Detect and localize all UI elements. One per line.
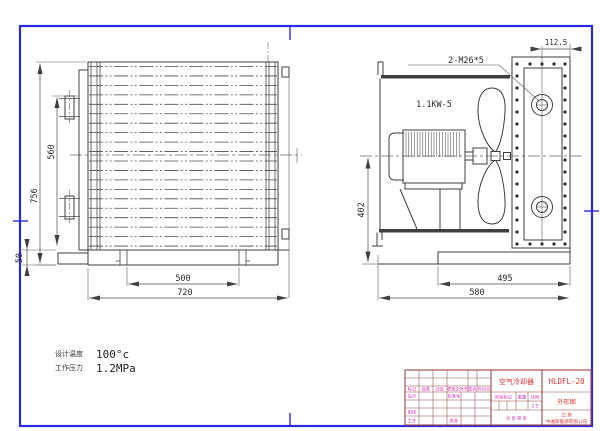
- dim-total-height: 756: [30, 188, 40, 203]
- tb-region: 江 苏: [561, 412, 572, 419]
- front-view: 756 560 50 500 720: [15, 42, 302, 300]
- dim-side-total-width: 580: [469, 288, 484, 298]
- tb-field-approve: 批准: [450, 417, 458, 424]
- title-block: 标记 处数 分区 更改文件号 签名 年月日 设计 标准化 审核 工艺 批准 阶段…: [405, 370, 591, 425]
- side-panel: [512, 46, 570, 248]
- tb-field-weight: 重量: [518, 394, 526, 401]
- tb-model: HLDFL-20: [548, 377, 585, 386]
- tb-field-stage-mark: 阶段标记: [495, 394, 513, 401]
- dim-fin-height: 560: [47, 144, 57, 159]
- dim-axis-height: 402: [357, 202, 367, 217]
- motor-fins: [406, 132, 459, 157]
- left-flange-lower: [59, 190, 80, 225]
- tb-company: 中通新能源有限公司: [546, 418, 588, 425]
- tb-sheets: 共 张 第 张: [506, 415, 528, 422]
- dim-port-offset: 112.5: [545, 38, 568, 47]
- fan-housing: [372, 62, 510, 246]
- port-label: 2-M26*5: [448, 56, 484, 66]
- front-dimensions: 756 560 50 500 720: [15, 62, 288, 300]
- design-temp-label: 设计温度: [55, 349, 83, 358]
- right-stub-lower: [282, 229, 289, 239]
- tb-field-date: 年月日: [478, 386, 491, 393]
- tb-field-review: 审核: [408, 409, 417, 416]
- side-labels: 2-M26*5 1.1KW-5: [408, 56, 539, 110]
- cad-drawing: 756 560 50 500 720: [0, 0, 600, 431]
- dim-base-height: 50: [15, 253, 25, 263]
- design-temp-value: 100°c: [96, 348, 129, 361]
- tb-product-name: 空气冷却器: [499, 377, 534, 386]
- right-stub-upper: [282, 67, 289, 77]
- tb-field-scale: 比例: [531, 394, 539, 401]
- tb-drawing-type: 外形图: [557, 398, 576, 406]
- tb-field-mark: 标记: [408, 386, 417, 393]
- dim-base-width: 495: [497, 274, 512, 284]
- tb-field-count: 处数: [422, 386, 431, 393]
- tube-rows: [89, 67, 277, 247]
- tb-field-design: 设计: [408, 393, 416, 400]
- motor-label: 1.1KW-5: [416, 100, 452, 110]
- side-view: 2-M26*5 1.1KW-5 112.5 402 495 580: [357, 38, 584, 300]
- panel-bolts: [515, 62, 566, 245]
- spec-notes: 设计温度 100°c 工作压力 1.2MPa: [55, 348, 136, 375]
- working-pressure-value: 1.2MPa: [96, 362, 136, 375]
- tb-field-process: 工艺: [408, 418, 416, 423]
- plinth: [438, 248, 570, 264]
- tb-field-standardization: 标准化: [448, 393, 461, 400]
- cad-drawing-sheet: 756 560 50 500 720: [0, 0, 600, 431]
- tb-field-signature: 签名: [468, 386, 476, 393]
- dim-foot-spacing: 500: [175, 274, 190, 284]
- dim-total-width: 720: [177, 288, 192, 298]
- tb-scale-value: 1:5: [532, 404, 539, 409]
- base: [58, 250, 289, 265]
- working-pressure-label: 工作压力: [55, 363, 83, 372]
- left-flange-upper: [59, 90, 80, 125]
- tb-field-zone: 分区: [436, 386, 444, 393]
- tb-field-change-file: 更改文件号: [447, 386, 468, 393]
- motor: [389, 130, 487, 229]
